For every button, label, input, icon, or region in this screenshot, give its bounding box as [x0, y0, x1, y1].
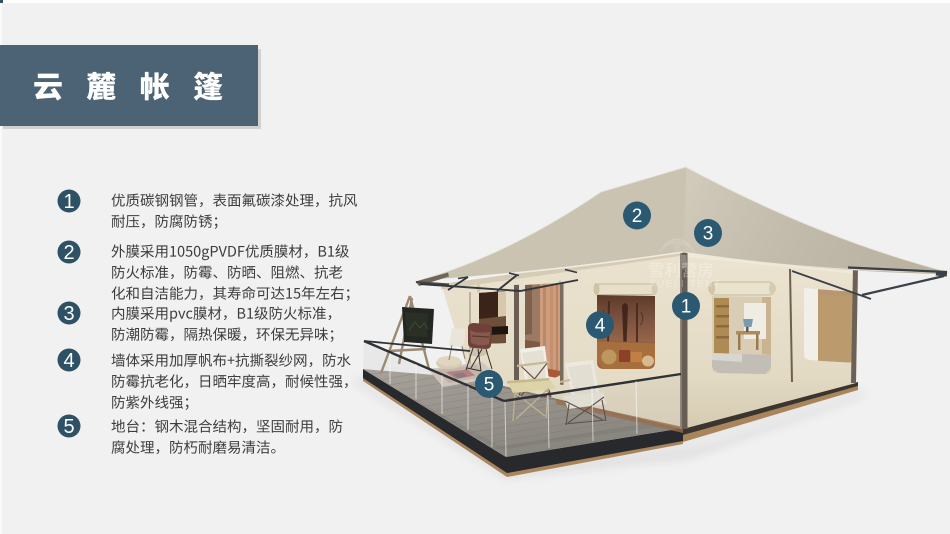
svg-text:5: 5	[484, 375, 495, 396]
svg-text:3: 3	[703, 224, 714, 245]
svg-text:4: 4	[63, 350, 74, 372]
svg-text:5: 5	[63, 416, 74, 438]
svg-text:1: 1	[63, 191, 74, 213]
svg-text:1: 1	[681, 297, 692, 318]
svg-text:4: 4	[595, 316, 606, 337]
svg-text:2: 2	[632, 206, 643, 227]
svg-text:XUELI TENT: XUELI TENT	[649, 279, 722, 290]
svg-text:3: 3	[63, 303, 74, 325]
svg-text:2: 2	[63, 242, 74, 264]
